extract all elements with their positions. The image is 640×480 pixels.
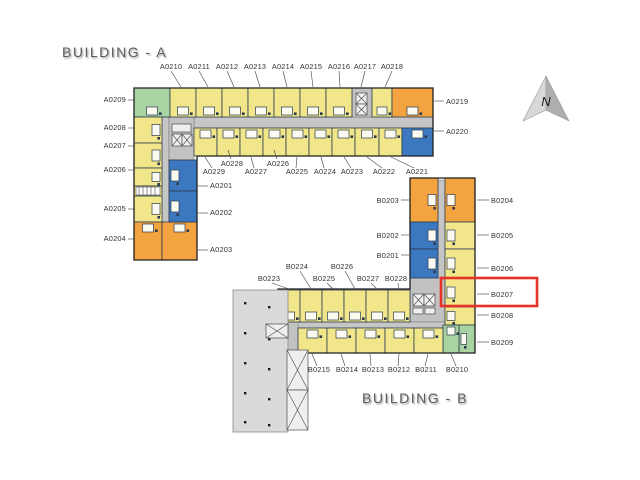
label-A0202: A0202 [210,208,232,217]
elevator-icon [172,124,192,146]
label-B0204: B0204 [491,196,513,205]
label-B0212: B0212 [388,365,410,374]
label-A0215: A0215 [300,62,322,71]
corridor [194,117,433,128]
label-A0209: A0209 [104,95,126,104]
label-A0204: A0204 [104,234,126,243]
label-A0212: A0212 [216,62,238,71]
label-B0202: B0202 [377,231,399,240]
corridor [288,322,445,328]
label-B0203: B0203 [377,196,399,205]
label-A0229: A0229 [203,167,225,176]
label-B0210: B0210 [446,365,468,374]
label-A0214: A0214 [272,62,294,71]
label-A0210: A0210 [160,62,182,71]
label-A0205: A0205 [104,204,126,213]
label-A0218: A0218 [381,62,403,71]
label-A0211: A0211 [188,62,210,71]
label-A0221: A0221 [406,167,428,176]
label-A0206: A0206 [104,165,126,174]
label-A0213: A0213 [244,62,266,71]
label-B0207: B0207 [491,290,513,299]
label-B0205: B0205 [491,231,513,240]
site-plan: A0210 A0211 A0212 A0213 A0214 A0215 A021… [0,0,640,480]
label-A0222: A0222 [373,167,395,176]
label-B0201: B0201 [377,251,399,260]
elevator-icon [356,93,367,115]
north-label: N [541,94,551,109]
ramp-icon [287,350,308,430]
label-B0223: B0223 [258,274,280,283]
label-A0219: A0219 [446,97,468,106]
label-B0214: B0214 [336,365,358,374]
label-B0211: B0211 [415,365,437,374]
floorplan-page: BUILDING - A BUILDING - B [0,0,640,480]
stair-icon [266,324,288,338]
label-A0227: A0227 [245,167,267,176]
label-B0213: B0213 [362,365,384,374]
label-B0227: B0227 [357,274,379,283]
label-A0207: A0207 [104,141,126,150]
label-B0225: B0225 [313,274,335,283]
label-B0206: B0206 [491,264,513,273]
label-A0203: A0203 [210,245,232,254]
label-A0216: A0216 [328,62,350,71]
corridor [438,180,445,278]
label-B0226: B0226 [331,262,353,271]
label-A0224: A0224 [314,167,336,176]
label-A0208: A0208 [104,123,126,132]
label-A0220: A0220 [446,127,468,136]
label-A0217: A0217 [354,62,376,71]
stairs-hatch-icon [136,187,160,195]
north-arrow-icon: N [523,76,569,121]
label-B0224: B0224 [286,262,308,271]
label-B0208: B0208 [491,311,513,320]
label-A0201: A0201 [210,181,232,190]
label-B0209: B0209 [491,338,513,347]
corridor [162,117,169,222]
label-B0228: B0228 [385,274,407,283]
label-B0215: B0215 [308,365,330,374]
label-A0225: A0225 [286,167,308,176]
label-A0223: A0223 [341,167,363,176]
